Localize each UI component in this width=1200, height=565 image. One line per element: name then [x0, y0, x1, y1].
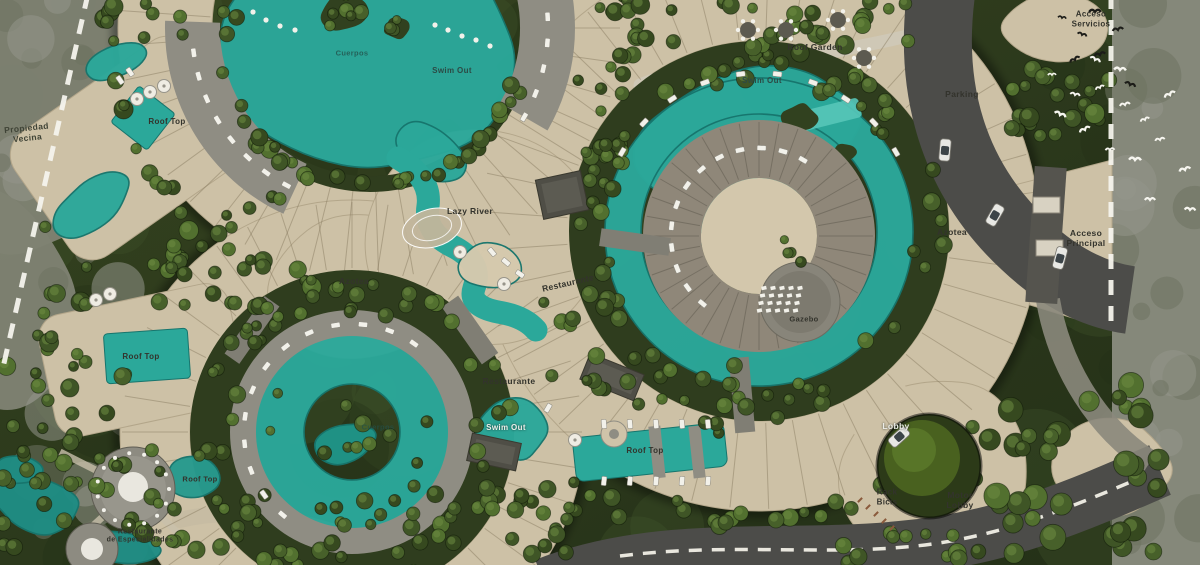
- master-plan-map: [0, 0, 1200, 565]
- site-plan-canvas: Acceso ServiciosCuerposSwim OutRoof Gard…: [0, 0, 1200, 565]
